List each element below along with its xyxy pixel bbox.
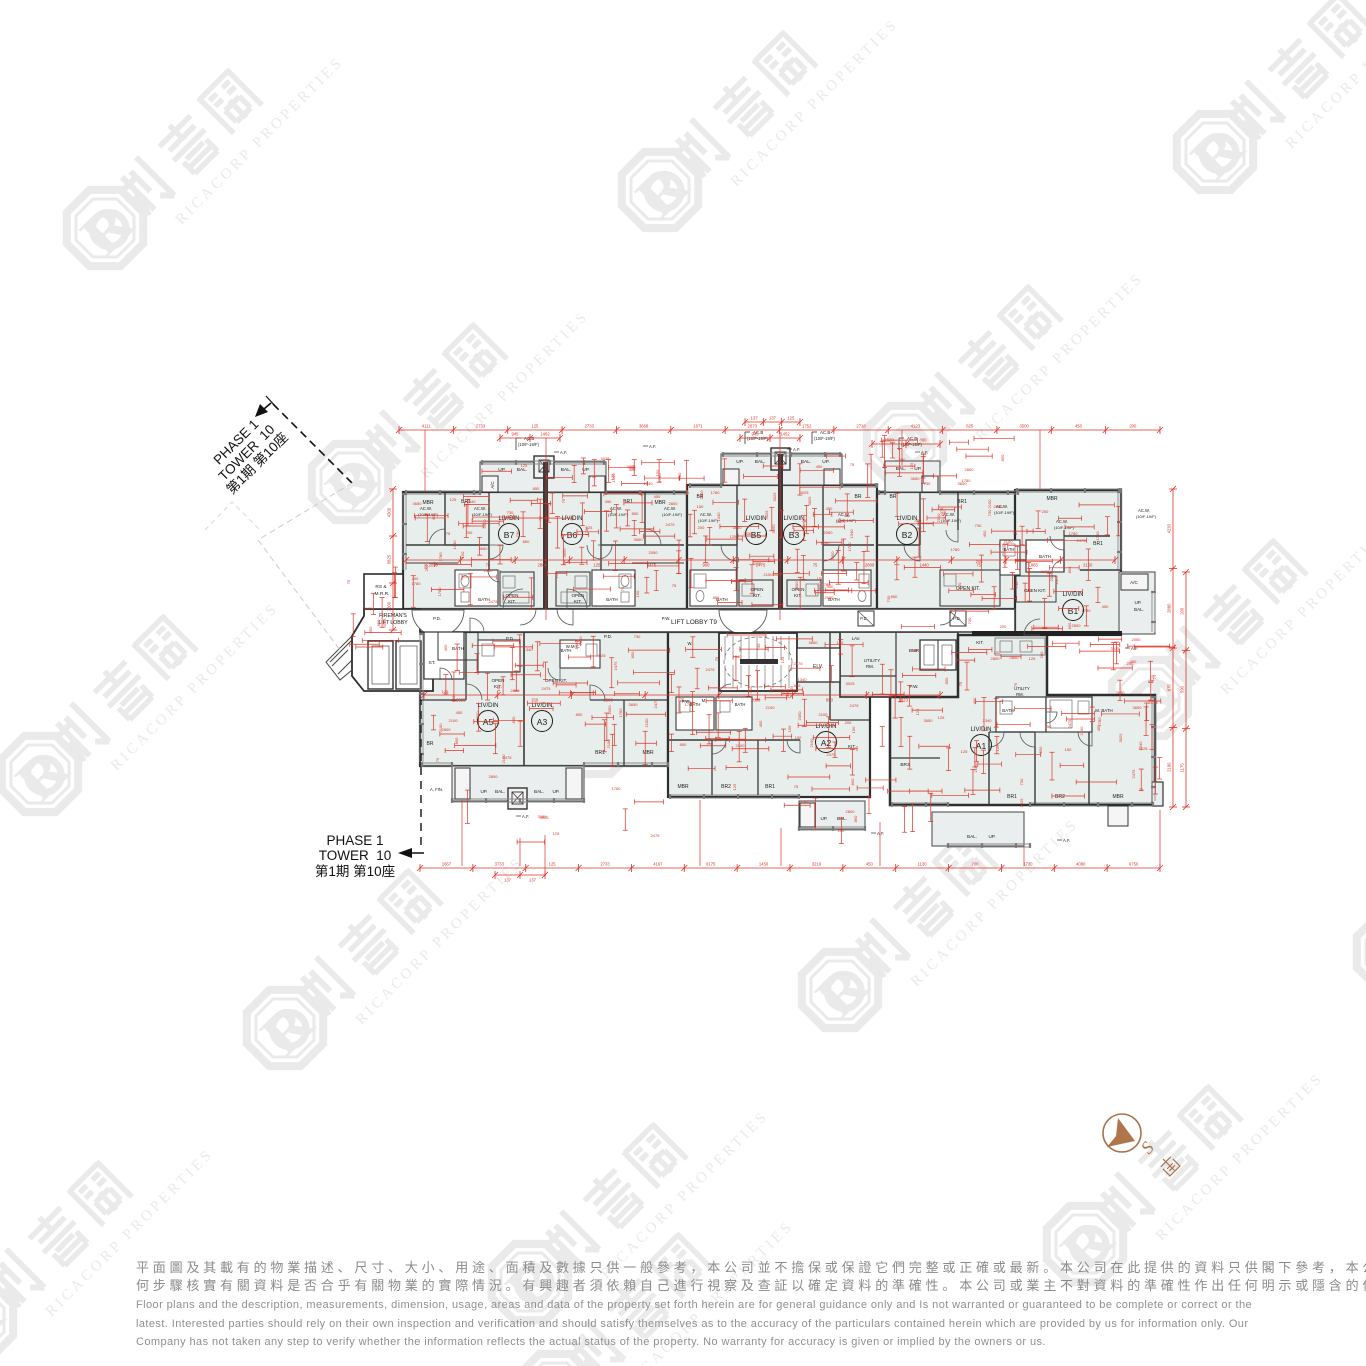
svg-text:150: 150 xyxy=(496,684,501,691)
svg-text:75: 75 xyxy=(976,563,981,568)
svg-text:2475: 2475 xyxy=(794,661,804,666)
svg-text:LIV/DIN: LIV/DIN xyxy=(1062,592,1083,598)
svg-text:KIT.: KIT. xyxy=(848,744,856,749)
svg-text:2100: 2100 xyxy=(936,513,941,523)
svg-text:1820: 1820 xyxy=(884,438,894,443)
svg-text:730: 730 xyxy=(987,509,992,516)
svg-text:3650: 3650 xyxy=(733,525,743,530)
svg-text:75: 75 xyxy=(672,583,677,588)
svg-text:2475: 2475 xyxy=(706,667,716,672)
svg-text:1340: 1340 xyxy=(849,529,854,539)
svg-text:1340: 1340 xyxy=(452,540,457,550)
svg-text:200: 200 xyxy=(1000,624,1007,629)
svg-text:KIT.: KIT. xyxy=(574,599,582,604)
svg-text:RM.: RM. xyxy=(866,664,874,669)
svg-text:BAL.: BAL. xyxy=(495,789,505,794)
svg-text:BAL.: BAL. xyxy=(1134,607,1144,612)
svg-text:2475: 2475 xyxy=(613,661,618,671)
svg-text:850: 850 xyxy=(1067,566,1072,573)
svg-text:2718: 2718 xyxy=(856,424,866,429)
svg-text:2800: 2800 xyxy=(669,501,679,506)
svg-text:75: 75 xyxy=(802,518,807,523)
svg-text:2100: 2100 xyxy=(438,723,443,733)
svg-text:3650: 3650 xyxy=(771,524,776,534)
svg-text:200: 200 xyxy=(1180,607,1185,615)
svg-text:A.F.: A.F. xyxy=(560,450,567,455)
svg-text:1340: 1340 xyxy=(644,481,654,486)
svg-text:850: 850 xyxy=(368,626,373,633)
svg-text:125: 125 xyxy=(549,862,557,867)
svg-text:BAL.: BAL. xyxy=(534,789,544,794)
svg-text:1780: 1780 xyxy=(657,473,662,483)
svg-text:A5: A5 xyxy=(483,717,494,727)
svg-text:75: 75 xyxy=(1152,674,1157,679)
svg-text:2475: 2475 xyxy=(653,699,658,709)
svg-text:450: 450 xyxy=(1075,424,1083,429)
svg-text:A. FIN.: A. FIN. xyxy=(430,787,443,792)
svg-text:AC.W.: AC.W. xyxy=(1056,519,1068,524)
svg-text:2800: 2800 xyxy=(965,467,975,472)
svg-text:2050: 2050 xyxy=(1132,637,1142,642)
svg-text:5825: 5825 xyxy=(387,554,392,564)
svg-text:730: 730 xyxy=(967,617,972,624)
svg-text:RS &: RS & xyxy=(375,584,387,590)
svg-text:4300: 4300 xyxy=(387,507,392,517)
svg-text:2100: 2100 xyxy=(449,718,459,723)
svg-text:730: 730 xyxy=(957,582,962,589)
svg-text:2475: 2475 xyxy=(1077,538,1087,543)
svg-text:3733: 3733 xyxy=(495,862,505,867)
svg-text:A2: A2 xyxy=(821,738,832,748)
svg-text:BR1: BR1 xyxy=(595,750,605,756)
svg-text:W.: W. xyxy=(688,641,693,646)
svg-text:1440: 1440 xyxy=(919,563,929,568)
svg-text:2800: 2800 xyxy=(489,774,499,779)
svg-text:(10/F-19/F): (10/F-19/F) xyxy=(1136,514,1157,519)
svg-text:75: 75 xyxy=(794,784,799,789)
svg-text:PHASE 1: PHASE 1 xyxy=(326,833,383,848)
svg-text:2880: 2880 xyxy=(1167,603,1172,613)
svg-text:200: 200 xyxy=(845,720,852,725)
svg-text:730: 730 xyxy=(801,799,808,804)
svg-text:850: 850 xyxy=(454,737,459,744)
svg-text:75: 75 xyxy=(813,563,818,568)
svg-text:BR1: BR1 xyxy=(623,499,633,505)
svg-text:AC.W.: AC.W. xyxy=(664,506,676,511)
svg-text:450: 450 xyxy=(748,686,753,693)
svg-text:2050: 2050 xyxy=(994,504,1004,509)
svg-text:BATH: BATH xyxy=(735,702,746,707)
svg-text:125: 125 xyxy=(787,416,795,421)
svg-text:3500: 3500 xyxy=(1019,424,1029,429)
svg-text:平面圖及其載有的物業描述、尺寸、大小、用途、面積及數據只供一: 平面圖及其載有的物業描述、尺寸、大小、用途、面積及數據只供一般參考，本公司並不擔… xyxy=(136,1260,1366,1275)
svg-text:P.W.: P.W. xyxy=(662,616,671,621)
svg-text:450: 450 xyxy=(629,465,636,470)
svg-text:730: 730 xyxy=(924,481,931,486)
svg-text:730: 730 xyxy=(590,474,597,479)
svg-text:(10/F-19/F): (10/F-19/F) xyxy=(518,442,540,447)
svg-text:2050: 2050 xyxy=(825,595,835,600)
svg-text:2800: 2800 xyxy=(794,581,799,591)
svg-text:BAL.: BAL. xyxy=(837,816,847,821)
svg-text:2100: 2100 xyxy=(809,738,814,748)
svg-text:(10/F-19/F): (10/F-19/F) xyxy=(747,436,769,441)
svg-text:MBR: MBR xyxy=(677,784,689,790)
svg-text:850: 850 xyxy=(891,594,898,599)
svg-text:125: 125 xyxy=(450,497,457,502)
svg-text:LIV/DIN: LIV/DIN xyxy=(531,703,552,709)
svg-text:(10/F-19/F): (10/F-19/F) xyxy=(472,512,493,517)
svg-text:125: 125 xyxy=(837,640,844,645)
svg-text:B7: B7 xyxy=(504,530,515,540)
svg-text:4167: 4167 xyxy=(653,862,663,867)
svg-text:2475: 2475 xyxy=(489,599,499,604)
svg-text:75: 75 xyxy=(680,698,685,703)
svg-text:3219: 3219 xyxy=(812,862,822,867)
svg-text:BAL.: BAL. xyxy=(967,834,977,839)
svg-text:1823: 1823 xyxy=(898,698,908,703)
svg-text:730: 730 xyxy=(507,510,514,515)
svg-text:1780: 1780 xyxy=(618,708,623,718)
svg-text:(10/F-19/F): (10/F-19/F) xyxy=(662,512,683,517)
svg-text:150: 150 xyxy=(817,576,824,581)
svg-text:P.D.: P.D. xyxy=(506,636,514,641)
svg-text:137: 137 xyxy=(751,416,759,421)
svg-text:2475: 2475 xyxy=(1131,769,1136,779)
svg-text:3650: 3650 xyxy=(629,702,639,707)
svg-text:850: 850 xyxy=(826,698,834,703)
svg-text:1452: 1452 xyxy=(780,432,790,437)
svg-text:880: 880 xyxy=(920,438,928,443)
svg-text:3025: 3025 xyxy=(1019,798,1024,808)
svg-text:OPEN: OPEN xyxy=(491,678,504,683)
svg-text:2300: 2300 xyxy=(387,601,392,611)
svg-text:450: 450 xyxy=(443,644,448,651)
svg-text:LAV.: LAV. xyxy=(852,636,860,641)
svg-text:AC.W.: AC.W. xyxy=(1138,508,1150,513)
svg-text:125: 125 xyxy=(593,563,601,568)
svg-text:3025: 3025 xyxy=(1139,746,1149,751)
svg-text:2475: 2475 xyxy=(647,563,657,568)
svg-text:150: 150 xyxy=(787,725,792,732)
svg-text:150: 150 xyxy=(697,504,704,509)
svg-text:125: 125 xyxy=(531,424,539,429)
svg-text:3650: 3650 xyxy=(634,537,644,542)
svg-text:450: 450 xyxy=(654,494,661,499)
svg-text:P.D.: P.D. xyxy=(604,634,612,639)
svg-text:1671: 1671 xyxy=(693,424,703,429)
svg-text:150: 150 xyxy=(851,726,856,733)
svg-text:1780: 1780 xyxy=(942,509,947,519)
svg-text:1175: 1175 xyxy=(1180,763,1185,773)
svg-text:2800: 2800 xyxy=(1041,569,1051,574)
svg-text:BR2: BR2 xyxy=(721,784,731,790)
svg-text:850: 850 xyxy=(850,778,855,785)
svg-text:2150: 2150 xyxy=(1083,563,1093,568)
svg-text:3650: 3650 xyxy=(482,519,487,529)
svg-text:150: 150 xyxy=(911,648,918,653)
svg-text:590: 590 xyxy=(1180,685,1185,693)
svg-text:2100: 2100 xyxy=(819,712,829,717)
svg-text:2475: 2475 xyxy=(1149,700,1159,705)
svg-text:(10/F-19/F): (10/F-19/F) xyxy=(814,436,836,441)
svg-text:2475: 2475 xyxy=(827,752,837,757)
svg-text:TOWER 10: TOWER 10 xyxy=(319,848,392,863)
svg-text:4111: 4111 xyxy=(422,424,431,429)
svg-text:450: 450 xyxy=(866,862,874,867)
svg-text:1780: 1780 xyxy=(685,702,695,707)
svg-text:1340: 1340 xyxy=(733,654,743,659)
svg-text:125: 125 xyxy=(938,715,945,720)
svg-text:1340: 1340 xyxy=(524,647,534,652)
svg-text:2475: 2475 xyxy=(666,522,676,527)
svg-text:BR1: BR1 xyxy=(765,784,775,790)
svg-text:1780: 1780 xyxy=(412,581,422,586)
svg-text:A1: A1 xyxy=(976,741,987,751)
svg-text:BAL.: BAL. xyxy=(896,466,906,472)
svg-text:2475: 2475 xyxy=(850,703,860,708)
svg-text:75: 75 xyxy=(1013,682,1018,687)
svg-text:LIFT LOBBY T9: LIFT LOBBY T9 xyxy=(671,619,717,626)
svg-text:2050: 2050 xyxy=(830,551,835,561)
svg-text:825: 825 xyxy=(966,424,974,429)
svg-text:450: 450 xyxy=(816,464,823,469)
svg-text:200: 200 xyxy=(1039,651,1044,658)
svg-text:2733: 2733 xyxy=(476,424,486,429)
svg-text:BR1: BR1 xyxy=(1007,794,1017,800)
svg-text:1780: 1780 xyxy=(437,587,442,597)
svg-text:2733: 2733 xyxy=(585,424,595,429)
svg-text:UP.: UP. xyxy=(1134,600,1141,605)
svg-text:何步驟核實有關資料是否合乎有關物業的實際情況。有興趣者須依賴: 何步驟核實有關資料是否合乎有關物業的實際情況。有興趣者須依賴自己進行視察及查証以… xyxy=(136,1278,1366,1293)
svg-text:200: 200 xyxy=(899,457,906,462)
svg-text:3650: 3650 xyxy=(924,718,934,723)
svg-text:2673: 2673 xyxy=(748,424,758,429)
svg-text:125: 125 xyxy=(442,689,449,694)
svg-text:P.D.: P.D. xyxy=(433,616,441,621)
svg-text:AC.W.: AC.W. xyxy=(474,506,486,511)
svg-text:75: 75 xyxy=(435,757,440,762)
svg-text:2100: 2100 xyxy=(987,499,992,509)
svg-text:730: 730 xyxy=(634,634,641,639)
svg-text:2475: 2475 xyxy=(651,833,661,838)
svg-text:2800: 2800 xyxy=(511,688,521,693)
svg-text:75: 75 xyxy=(446,531,451,536)
svg-text:2050: 2050 xyxy=(773,572,783,577)
svg-text:A3: A3 xyxy=(537,717,548,727)
svg-text:UTILITY: UTILITY xyxy=(864,658,880,663)
svg-text:850: 850 xyxy=(1038,746,1043,753)
svg-text:125: 125 xyxy=(909,462,914,469)
svg-text:BR2: BR2 xyxy=(1055,794,1065,800)
svg-text:2525: 2525 xyxy=(456,698,466,703)
svg-text:1780: 1780 xyxy=(1097,717,1102,727)
svg-text:3668: 3668 xyxy=(639,424,649,429)
svg-text:200: 200 xyxy=(994,650,1001,655)
svg-text:150: 150 xyxy=(1045,724,1052,729)
svg-text:450: 450 xyxy=(758,720,763,727)
svg-text:MBR: MBR xyxy=(642,750,654,756)
svg-text:450: 450 xyxy=(982,530,987,537)
svg-text:1752: 1752 xyxy=(802,424,812,429)
svg-text:(10/F-19/F): (10/F-19/F) xyxy=(994,510,1015,515)
svg-text:125: 125 xyxy=(961,749,968,754)
svg-text:150: 150 xyxy=(554,571,559,578)
svg-text:(10/F-19/F): (10/F-19/F) xyxy=(608,512,629,517)
svg-text:BR1: BR1 xyxy=(1093,541,1103,547)
svg-text:KIT.: KIT. xyxy=(508,599,516,604)
svg-text:1667: 1667 xyxy=(442,862,452,867)
svg-text:B1: B1 xyxy=(1068,606,1079,616)
svg-text:75: 75 xyxy=(346,579,351,584)
svg-text:第1期 第10座: 第1期 第10座 xyxy=(315,863,395,879)
svg-text:OPEN KIT.: OPEN KIT. xyxy=(1024,588,1046,593)
svg-text:LIV/DIN: LIV/DIN xyxy=(970,727,991,733)
svg-text:2800: 2800 xyxy=(604,698,614,703)
svg-text:UP.: UP. xyxy=(736,459,743,465)
svg-text:2190: 2190 xyxy=(1167,762,1172,772)
svg-text:2100: 2100 xyxy=(501,754,506,764)
svg-text:945: 945 xyxy=(752,432,760,437)
svg-text:730: 730 xyxy=(1014,581,1019,588)
svg-text:1340: 1340 xyxy=(1095,531,1100,541)
svg-text:A.F.: A.F. xyxy=(522,814,529,819)
svg-text:2100: 2100 xyxy=(973,763,978,773)
svg-text:1730: 1730 xyxy=(1023,862,1033,867)
svg-text:3650: 3650 xyxy=(413,501,423,506)
svg-text:3025: 3025 xyxy=(764,510,769,520)
svg-text:75: 75 xyxy=(485,563,490,568)
svg-text:6175: 6175 xyxy=(706,862,716,867)
svg-text:450: 450 xyxy=(1102,604,1109,609)
svg-text:3025: 3025 xyxy=(846,681,856,686)
svg-text:150: 150 xyxy=(795,735,802,740)
svg-text:125: 125 xyxy=(995,744,1000,751)
svg-text:900: 900 xyxy=(702,563,710,568)
svg-text:200: 200 xyxy=(1129,424,1137,429)
svg-text:1340: 1340 xyxy=(716,512,721,522)
svg-text:LIV/DIN: LIV/DIN xyxy=(815,724,836,730)
svg-text:2800: 2800 xyxy=(751,698,761,703)
svg-text:1780: 1780 xyxy=(1082,608,1092,613)
svg-text:BAL.: BAL. xyxy=(755,459,765,465)
svg-text:730: 730 xyxy=(975,523,982,528)
svg-text:UP.: UP. xyxy=(822,459,829,465)
svg-text:850: 850 xyxy=(376,619,381,626)
svg-text:4123: 4123 xyxy=(911,424,921,429)
svg-text:150: 150 xyxy=(635,590,640,597)
svg-text:2050: 2050 xyxy=(607,705,612,715)
svg-text:OPEN KIT.: OPEN KIT. xyxy=(545,678,567,683)
svg-text:ST.: ST. xyxy=(429,660,436,666)
svg-text:850: 850 xyxy=(944,677,949,684)
svg-text:125: 125 xyxy=(915,708,920,715)
svg-text:2475: 2475 xyxy=(1067,719,1072,729)
svg-text:2050: 2050 xyxy=(649,550,659,555)
svg-text:3025: 3025 xyxy=(772,492,777,502)
svg-text:1340: 1340 xyxy=(983,718,993,723)
svg-text:850: 850 xyxy=(680,742,687,747)
svg-text:3025: 3025 xyxy=(1111,646,1121,651)
svg-text:1780: 1780 xyxy=(1069,531,1079,536)
svg-text:75: 75 xyxy=(850,462,855,467)
svg-text:137: 137 xyxy=(769,416,777,421)
svg-text:A.F.: A.F. xyxy=(649,444,656,449)
svg-text:1340: 1340 xyxy=(467,499,477,504)
svg-text:1780: 1780 xyxy=(821,541,831,546)
svg-text:200: 200 xyxy=(466,530,473,535)
svg-text:Floor plans and the descriptio: Floor plans and the description, measure… xyxy=(136,1299,1252,1311)
svg-text:1340: 1340 xyxy=(484,568,494,573)
svg-text:945: 945 xyxy=(512,432,520,437)
svg-text:2800: 2800 xyxy=(846,809,856,814)
svg-text:875: 875 xyxy=(1167,684,1172,692)
svg-text:3025: 3025 xyxy=(540,815,550,820)
svg-text:UP.: UP. xyxy=(820,816,827,821)
svg-text:2800: 2800 xyxy=(538,563,548,568)
svg-text:P.D.: P.D. xyxy=(860,616,868,621)
svg-text:1340: 1340 xyxy=(611,473,616,483)
svg-text:A/C: A/C xyxy=(1130,580,1138,585)
svg-text:850: 850 xyxy=(576,712,583,717)
svg-text:2475: 2475 xyxy=(756,563,766,568)
svg-text:200: 200 xyxy=(412,576,419,581)
svg-text:M.R.R.: M.R.R. xyxy=(375,591,390,597)
svg-text:3650: 3650 xyxy=(1133,705,1143,710)
svg-text:3025: 3025 xyxy=(1118,733,1123,743)
svg-text:BAL.: BAL. xyxy=(801,459,811,465)
svg-text:ELV.: ELV. xyxy=(813,664,823,670)
svg-text:BATH: BATH xyxy=(1002,708,1013,713)
svg-text:1450: 1450 xyxy=(759,862,769,867)
svg-text:4230: 4230 xyxy=(1167,523,1172,533)
svg-text:2100: 2100 xyxy=(1079,726,1084,736)
svg-text:75: 75 xyxy=(714,656,719,661)
svg-text:450: 450 xyxy=(826,506,833,511)
svg-text:UP.: UP. xyxy=(914,466,921,472)
svg-text:2475: 2475 xyxy=(1054,575,1059,585)
svg-text:125: 125 xyxy=(730,534,737,539)
svg-text:3650: 3650 xyxy=(1116,690,1126,695)
svg-text:3025: 3025 xyxy=(382,618,387,628)
svg-text:200: 200 xyxy=(838,828,845,833)
svg-text:3650: 3650 xyxy=(562,548,567,558)
svg-text:2100: 2100 xyxy=(644,718,649,728)
svg-text:2800: 2800 xyxy=(865,563,875,568)
svg-text:A/C: A/C xyxy=(490,481,495,488)
svg-text:2800: 2800 xyxy=(991,656,1001,661)
svg-text:200: 200 xyxy=(972,862,980,867)
svg-text:850: 850 xyxy=(794,683,801,688)
svg-text:BR3: BR3 xyxy=(900,762,910,768)
svg-text:MBR: MBR xyxy=(1046,496,1058,502)
svg-text:2475: 2475 xyxy=(837,519,847,524)
svg-text:850: 850 xyxy=(533,486,540,491)
svg-text:2100: 2100 xyxy=(1004,539,1014,544)
svg-text:2733: 2733 xyxy=(600,862,610,867)
svg-text:730: 730 xyxy=(756,643,761,650)
svg-text:75: 75 xyxy=(1013,531,1018,536)
svg-text:KIT.: KIT. xyxy=(794,593,802,598)
svg-text:3650: 3650 xyxy=(744,531,754,536)
svg-text:BAL.: BAL. xyxy=(561,467,571,473)
svg-text:AC.W.: AC.W. xyxy=(700,512,712,517)
svg-text:BR1: BR1 xyxy=(957,499,967,505)
svg-text:3025: 3025 xyxy=(597,653,607,658)
svg-text:1340: 1340 xyxy=(798,677,808,682)
svg-text:2050: 2050 xyxy=(475,711,480,721)
svg-text:850: 850 xyxy=(523,539,530,544)
